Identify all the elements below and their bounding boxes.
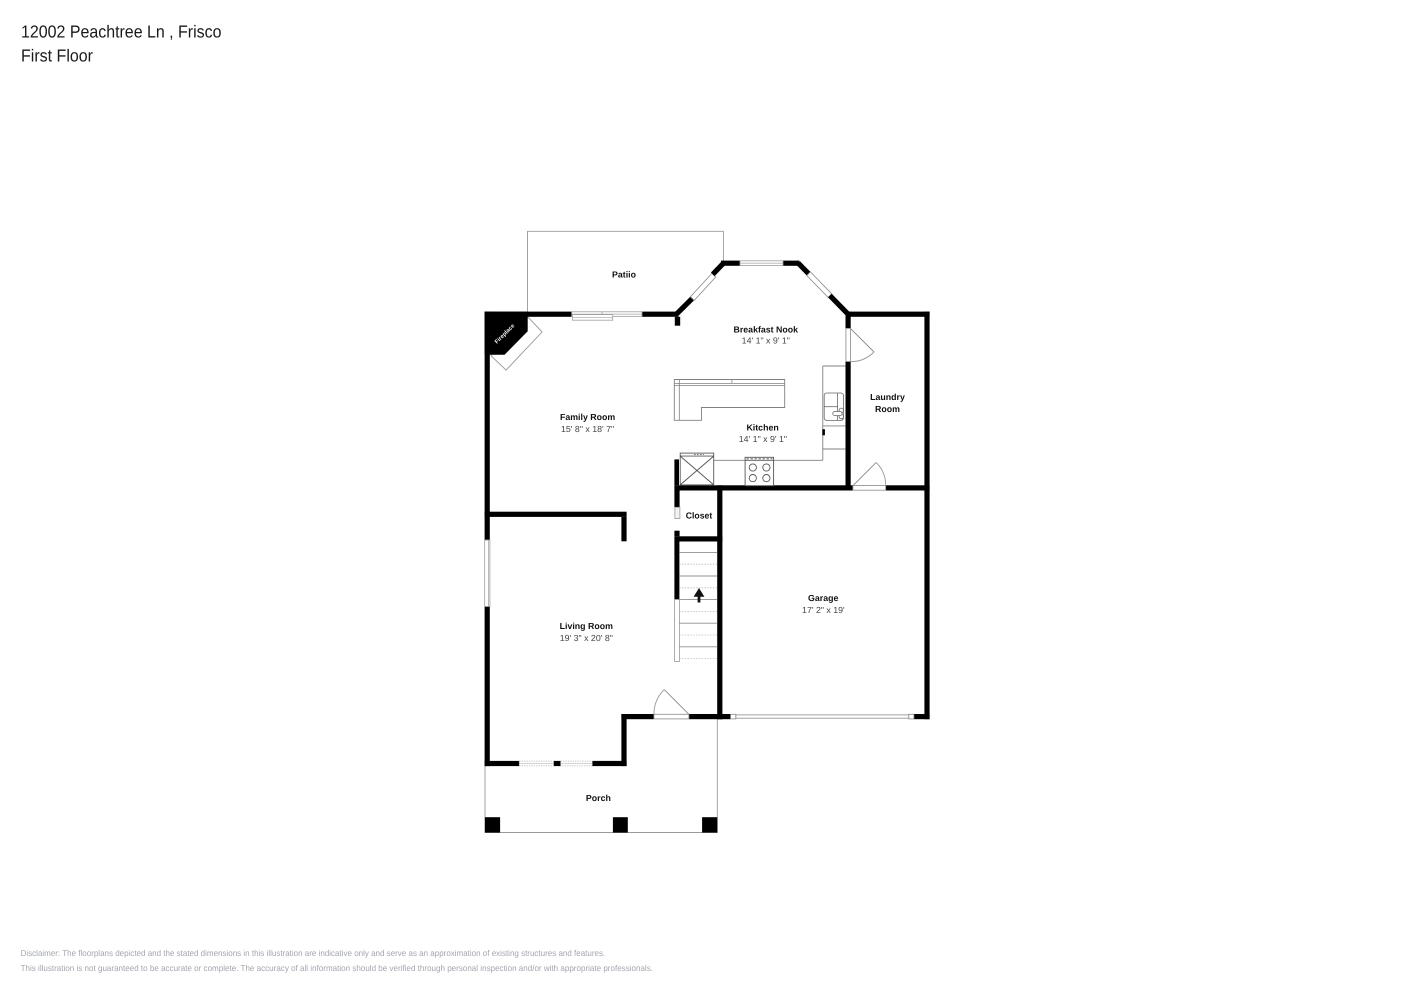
svg-text:12002 Peachtree Ln , Frisco: 12002 Peachtree Ln , Frisco	[21, 21, 222, 41]
svg-text:This illustration is not guara: This illustration is not guaranteed to b…	[21, 963, 653, 973]
svg-text:Closet: Closet	[686, 510, 713, 520]
svg-text:Garage: Garage	[808, 593, 838, 603]
svg-text:Living Room: Living Room	[560, 621, 613, 631]
svg-text:17' 2" x 19': 17' 2" x 19'	[802, 605, 845, 615]
svg-text:First Floor: First Floor	[21, 45, 93, 65]
svg-text:14' 1" x 9' 1": 14' 1" x 9' 1"	[742, 336, 790, 346]
svg-text:19' 3" x 20' 8": 19' 3" x 20' 8"	[560, 633, 613, 643]
svg-text:Disclaimer: The floorplans dep: Disclaimer: The floorplans depicted and …	[21, 948, 606, 958]
svg-text:Kitchen: Kitchen	[746, 422, 778, 432]
svg-text:Family Room: Family Room	[560, 412, 615, 422]
svg-text:Room: Room	[875, 404, 900, 414]
svg-text:Patiio: Patiio	[612, 269, 637, 279]
svg-text:Laundry: Laundry	[870, 392, 905, 402]
svg-text:15' 8" x 18' 7": 15' 8" x 18' 7"	[561, 424, 614, 434]
svg-text:14' 1" x 9' 1": 14' 1" x 9' 1"	[739, 434, 787, 444]
svg-text:Porch: Porch	[586, 793, 611, 803]
svg-text:Breakfast Nook: Breakfast Nook	[734, 325, 799, 335]
